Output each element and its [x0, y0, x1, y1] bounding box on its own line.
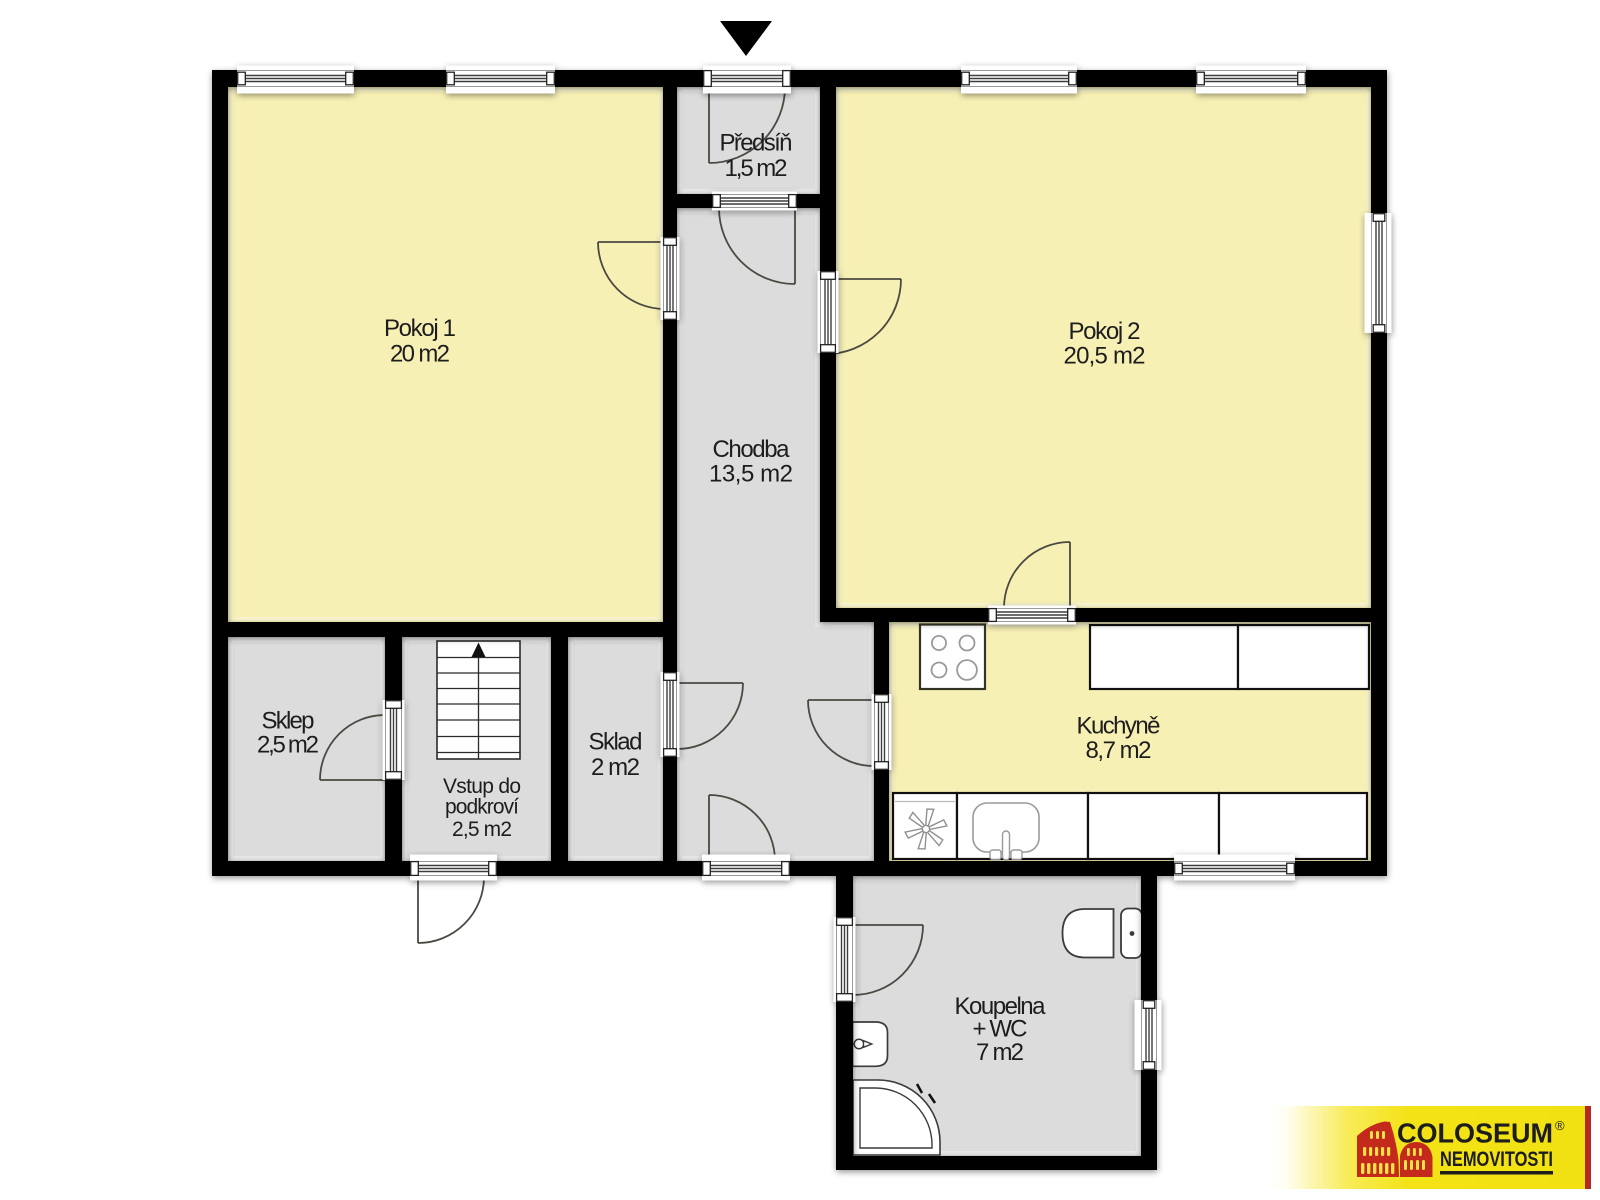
svg-text:podkroví: podkroví — [445, 796, 519, 819]
svg-text:8,7 m2: 8,7 m2 — [1086, 737, 1152, 764]
svg-text:Kuchyně: Kuchyně — [1077, 713, 1161, 740]
svg-text:20 m2: 20 m2 — [390, 341, 450, 368]
svg-text:®: ® — [1555, 1118, 1565, 1133]
svg-text:Pokoj 1: Pokoj 1 — [384, 315, 456, 342]
svg-text:Sklep: Sklep — [262, 708, 315, 735]
svg-text:Pokoj 2: Pokoj 2 — [1069, 318, 1141, 345]
svg-text:Chodba: Chodba — [713, 436, 791, 463]
svg-text:COLOSEUM: COLOSEUM — [1397, 1118, 1553, 1149]
svg-text:13,5 m2: 13,5 m2 — [709, 461, 793, 488]
svg-text:2,5 m2: 2,5 m2 — [257, 732, 319, 759]
svg-text:Sklad: Sklad — [589, 729, 643, 756]
svg-text:2 m2: 2 m2 — [591, 754, 640, 781]
svg-text:NEMOVITOSTI: NEMOVITOSTI — [1440, 1148, 1553, 1171]
svg-text:20,5 m2: 20,5 m2 — [1064, 343, 1146, 370]
svg-text:1,5 m2: 1,5 m2 — [725, 155, 788, 182]
svg-text:2,5 m2: 2,5 m2 — [452, 818, 512, 841]
svg-text:Předsíň: Předsíň — [720, 130, 793, 157]
svg-text:7 m2: 7 m2 — [976, 1039, 1024, 1066]
